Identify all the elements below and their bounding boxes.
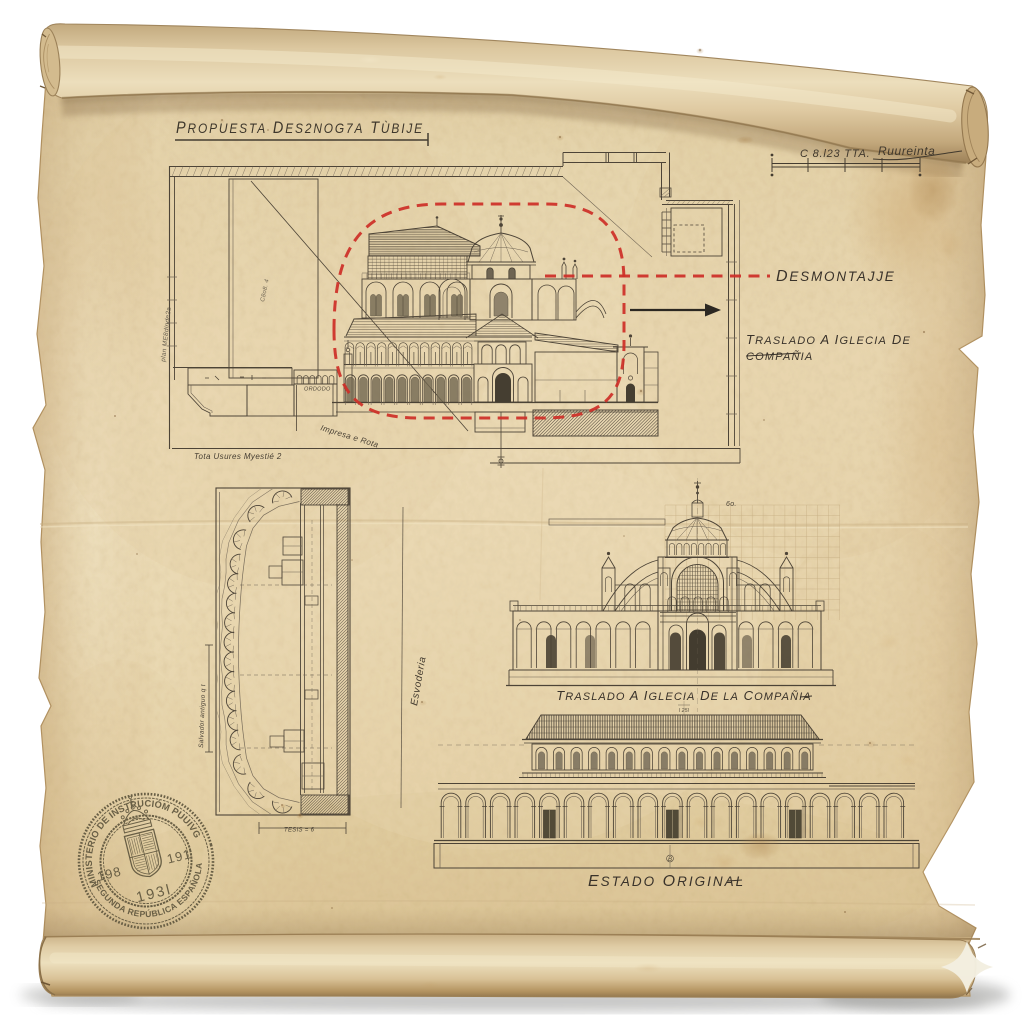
svg-text:TRASLADO A IGLECIA DE: TRASLADO A IGLECIA DE [746,332,911,347]
svg-text:ESTADO ORIGINAL: ESTADO ORIGINAL [588,873,745,890]
svg-text:Tota Usures Myestié 2: Tota Usures Myestié 2 [194,452,282,461]
svg-text:TRASLADO A IGLECIA DE LA COMPA: TRASLADO A IGLECIA DE LA COMPAÑIA [556,688,812,703]
svg-text:ORDODO: ORDODO [304,387,331,393]
svg-text:C 8.l23 TTA.: C 8.l23 TTA. [800,148,871,160]
svg-text:COMPAÑIA: COMPAÑIA [746,350,813,363]
svg-text:TESIS = 6: TESIS = 6 [284,828,315,834]
svg-text:PROPUESTA DES2NOG7A TÙBIJE: PROPUESTA DES2NOG7A TÙBIJE [176,118,424,137]
svg-text:l 25l: l 25l [679,708,690,714]
svg-text:6o.: 6o. [726,501,737,508]
svg-text:DESMONTAJJE: DESMONTAJJE [776,268,896,285]
